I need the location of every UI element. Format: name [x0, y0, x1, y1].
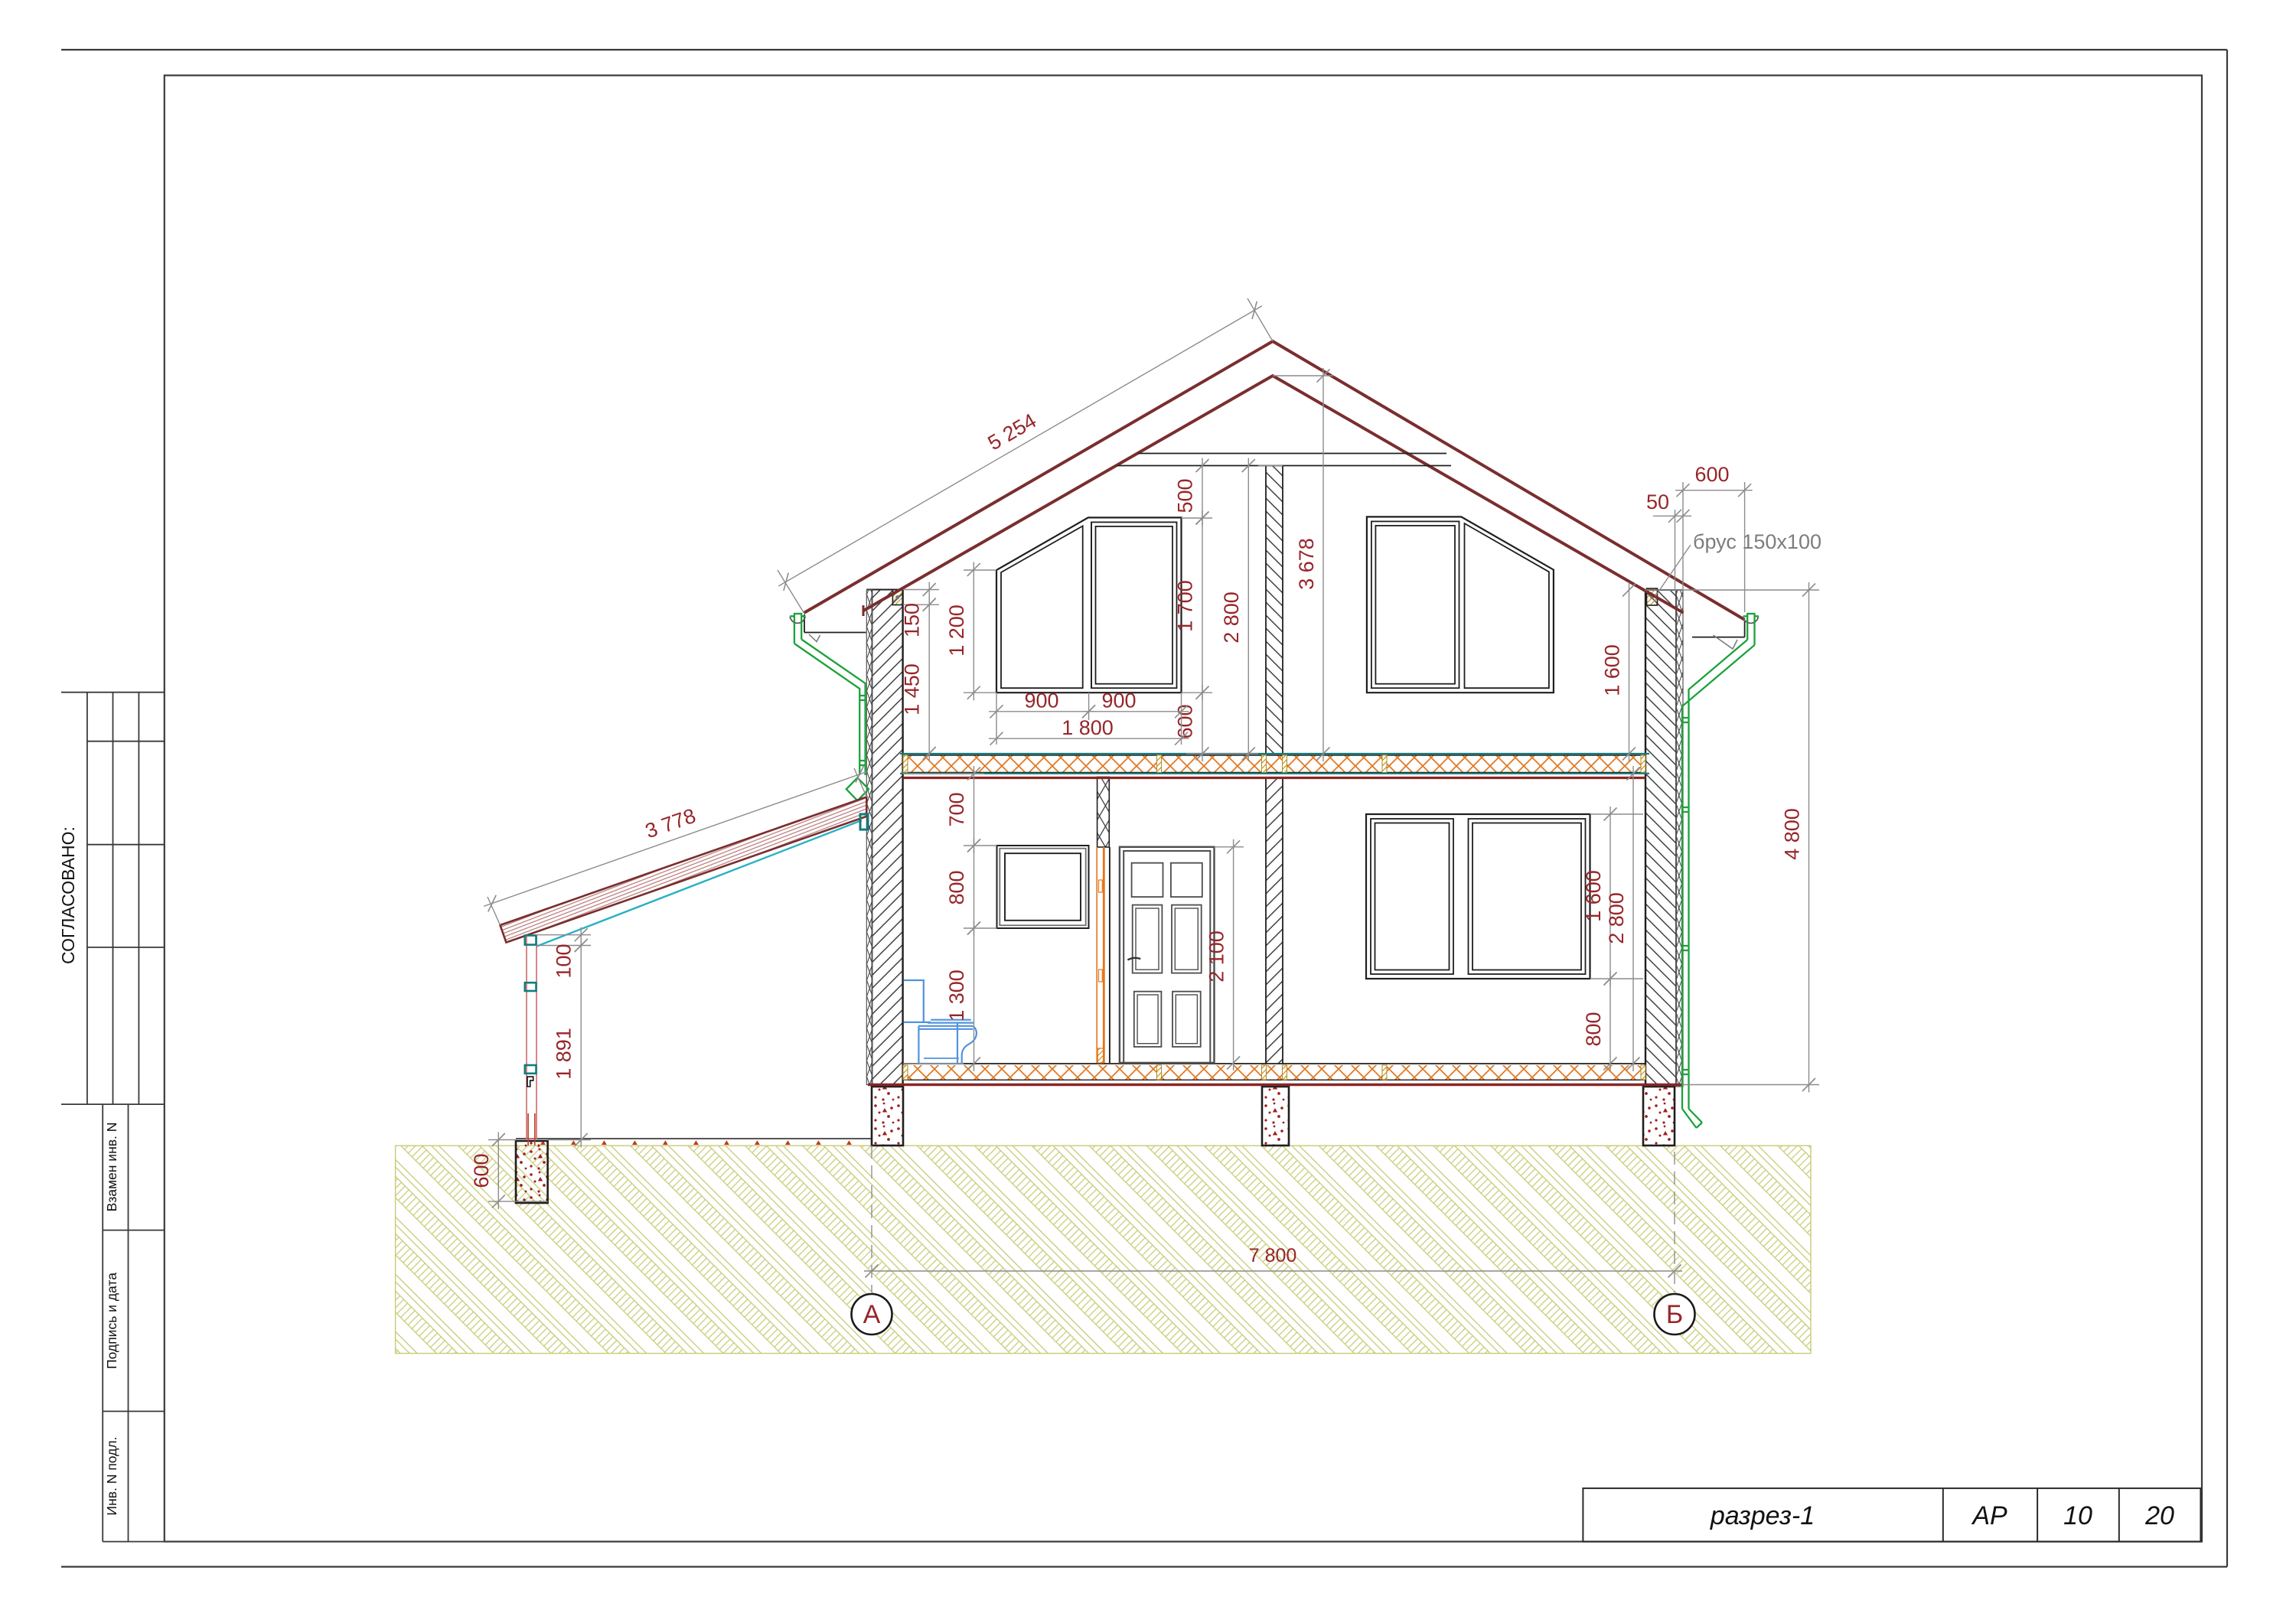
svg-text:1 300: 1 300 — [945, 970, 968, 1022]
svg-text:2 800: 2 800 — [1220, 592, 1243, 644]
svg-text:1 800: 1 800 — [1062, 716, 1114, 739]
svg-text:1 891: 1 891 — [553, 1028, 576, 1080]
svg-text:разрез-1: разрез-1 — [1710, 1501, 1815, 1530]
svg-text:10: 10 — [2063, 1501, 2092, 1530]
svg-text:2 100: 2 100 — [1205, 930, 1228, 983]
svg-text:А: А — [863, 1300, 881, 1329]
svg-text:Подпись и дата: Подпись и дата — [104, 1273, 119, 1369]
svg-text:2 800: 2 800 — [1605, 892, 1628, 944]
svg-text:150: 150 — [901, 603, 924, 637]
svg-text:100: 100 — [553, 943, 576, 978]
svg-text:20: 20 — [2144, 1501, 2174, 1530]
svg-text:1 450: 1 450 — [901, 663, 924, 715]
svg-text:900: 900 — [1101, 689, 1136, 712]
svg-text:3 678: 3 678 — [1295, 538, 1318, 590]
svg-text:Инв. N подл.: Инв. N подл. — [104, 1437, 119, 1516]
svg-text:800: 800 — [945, 870, 968, 904]
svg-text:600: 600 — [1174, 704, 1197, 738]
svg-text:1 600: 1 600 — [1582, 870, 1605, 922]
svg-text:Б: Б — [1666, 1300, 1683, 1329]
svg-text:7 800: 7 800 — [1249, 1245, 1297, 1266]
svg-text:1 700: 1 700 — [1174, 580, 1197, 632]
svg-text:900: 900 — [1024, 689, 1058, 712]
svg-text:700: 700 — [945, 792, 968, 826]
svg-text:1 600: 1 600 — [1601, 644, 1624, 696]
svg-text:800: 800 — [1582, 1012, 1605, 1046]
svg-text:Взамен инв. N: Взамен инв. N — [104, 1123, 119, 1212]
svg-text:50: 50 — [1646, 490, 1669, 513]
svg-text:600: 600 — [1694, 463, 1729, 486]
svg-text:АР: АР — [1971, 1501, 2007, 1530]
svg-text:СОГЛАСОВАНО:: СОГЛАСОВАНО: — [58, 826, 78, 964]
svg-text:брус 150х100: брус 150х100 — [1693, 530, 1821, 553]
svg-text:600: 600 — [470, 1153, 493, 1188]
svg-text:500: 500 — [1174, 478, 1197, 513]
svg-text:4 800: 4 800 — [1781, 808, 1804, 860]
svg-text:1 200: 1 200 — [945, 605, 968, 657]
